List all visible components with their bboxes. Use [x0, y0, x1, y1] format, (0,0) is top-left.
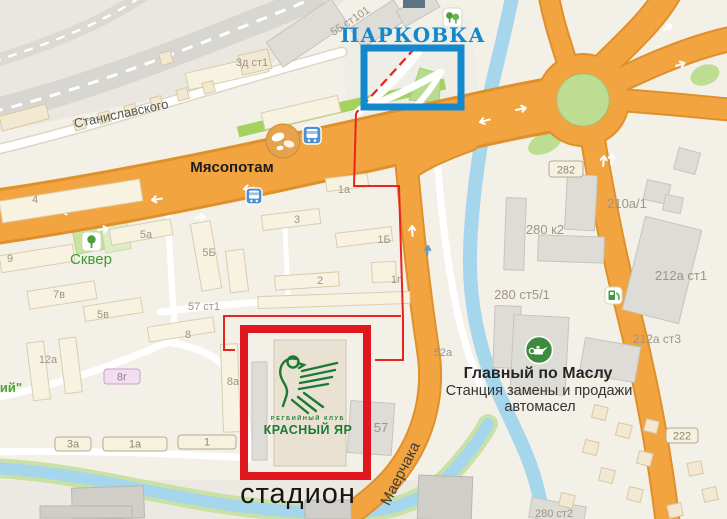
address-plate-label: 282 [557, 165, 575, 177]
address-label: 52а [434, 347, 453, 359]
address-label: 57 ст1 [188, 301, 220, 313]
poi-oil-subtitle1: Станция замены и продажи [446, 383, 633, 399]
fuel-station-icon[interactable] [605, 287, 622, 304]
parking-annotation-label: ПАРКОВКА [340, 23, 485, 47]
address-label: 12а [39, 354, 58, 366]
poi-myasopotam-label: Мясопотам [190, 159, 273, 176]
stadium-annotation-label: стадион [240, 478, 356, 510]
address-label: 212а ст1 [655, 268, 707, 283]
address-label: 280 ст2 [535, 508, 573, 519]
address-label: 4 [32, 194, 38, 206]
address-label: 1а [338, 184, 351, 196]
address-label: 8а [227, 376, 240, 388]
poi-oil-icon[interactable] [526, 337, 553, 364]
address-label: 8 [185, 329, 191, 341]
poi-myasopotam-icon[interactable] [266, 124, 300, 158]
address-plate-label: 222 [673, 431, 691, 443]
address-label: 5в [97, 309, 109, 321]
poi-oil-subtitle2: автомасел [504, 399, 575, 415]
poi-skver-label: Сквер [70, 251, 112, 268]
address-label: 3д ст1 [236, 57, 268, 69]
address-label: ий" [0, 380, 22, 395]
address-label: 280 ст5/1 [494, 287, 550, 302]
address-label: 5Б [202, 247, 215, 259]
address-label: 2 [317, 275, 323, 287]
bus-stop-icon[interactable] [246, 188, 262, 204]
address-plate-label: 1а [129, 439, 142, 451]
small-building [403, 0, 425, 8]
address-plate-label: 8г [117, 372, 127, 384]
address-plate-label: 3а [67, 439, 80, 451]
address-label: 3 [294, 214, 300, 226]
logo-club-name: КРАСНЫЙ ЯР [264, 422, 353, 437]
address-label: 7в [53, 289, 65, 301]
address-label: 57 [374, 420, 388, 435]
logo-club-type: РЕГБИЙНЫЙ КЛУБ [271, 414, 345, 422]
address-label: 210а/1 [607, 196, 647, 211]
map-canvas[interactable]: 3а1а12822228г 3д ст155 ст101495а5Б7в5в81… [0, 0, 727, 519]
skver-tree-icon[interactable] [82, 232, 101, 251]
address-label: 1г [391, 274, 401, 286]
bus-stop-icon[interactable] [303, 126, 321, 144]
address-label: 5а [140, 229, 153, 241]
address-label: 280 к2 [526, 222, 564, 237]
address-plate-label: 1 [204, 437, 210, 449]
address-label: 1Б [377, 234, 390, 246]
address-label: 212а ст3 [633, 332, 682, 346]
poi-oil-title: Главный по Маслу [464, 365, 613, 382]
address-label: 9 [7, 253, 13, 265]
